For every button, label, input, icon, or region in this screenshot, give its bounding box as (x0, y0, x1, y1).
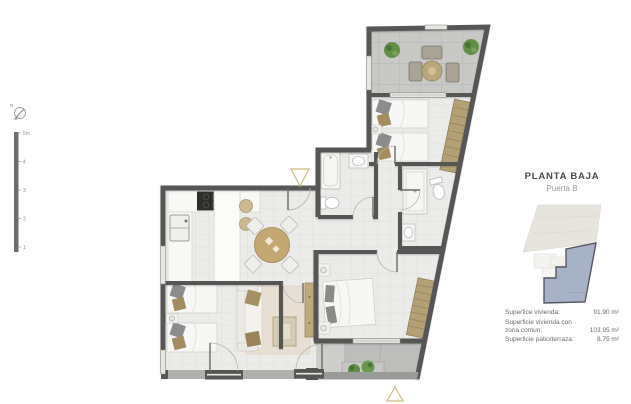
scale-label: 4 (23, 159, 26, 165)
scale-label: 2 (23, 216, 26, 222)
window (161, 246, 166, 284)
svg-text:N: N (10, 103, 13, 108)
plant-icon (463, 39, 479, 55)
coffee-table (273, 317, 296, 346)
scale-label: 1 (23, 245, 26, 251)
scale-label: 5m (23, 131, 30, 137)
plan-subtitle: Puerta B (503, 184, 621, 193)
measurements: Superfice vivienda: 91.90 m² Superficie … (503, 309, 621, 344)
floorplan-page: N 5m 4 3 2 1 (0, 0, 631, 404)
measurement-row: Superficie vivienda con zona comun: 103.… (505, 319, 619, 335)
north-compass-icon: N (10, 103, 26, 120)
measurement-row: Superfice vivienda: 91.90 m² (505, 309, 619, 317)
measurement-row: Superficie patio/terraza: 8.75 m² (505, 336, 619, 344)
terrace-chair (409, 62, 422, 81)
vent (425, 25, 447, 30)
measurement-label: Superfice vivienda: (505, 309, 560, 317)
entrance-marker-bottom-icon (387, 387, 403, 401)
measurement-label: Superficie vivienda con zona comun: (505, 319, 581, 335)
measurement-label: Superficie patio/terraza: (505, 336, 574, 344)
sink (402, 224, 415, 241)
key-plan (520, 202, 605, 304)
terrace-chair (422, 46, 442, 59)
entrance-marker-top-icon (291, 169, 309, 186)
kitchen-island (214, 190, 240, 282)
terrace-chair (446, 63, 459, 82)
plant-icon (362, 361, 375, 374)
media-console (305, 283, 314, 337)
measurement-value: 8.75 m² (597, 336, 619, 344)
scale-bar: 5m 4 3 2 1 (14, 131, 30, 252)
bathtub (321, 152, 340, 189)
terrace-floor (369, 27, 488, 95)
stool (240, 200, 253, 213)
sofa (237, 283, 262, 351)
plant-icon (384, 42, 400, 58)
kitchen-sink (170, 215, 189, 241)
plan-title: PLANTA BAJA (503, 171, 621, 182)
measurement-value: 103.95 m² (590, 327, 619, 335)
window (161, 350, 166, 374)
measurement-value: 91.90 m² (593, 309, 619, 317)
dining-table (255, 228, 290, 263)
window (367, 56, 372, 90)
scale-label: 3 (23, 188, 26, 194)
window (294, 369, 324, 379)
legend-panel: PLANTA BAJA Puerta B Superfice vivienda:… (503, 171, 621, 346)
key-plan-other-unit (550, 257, 564, 266)
sink (349, 154, 368, 168)
window (205, 370, 243, 380)
toilet (321, 197, 340, 209)
